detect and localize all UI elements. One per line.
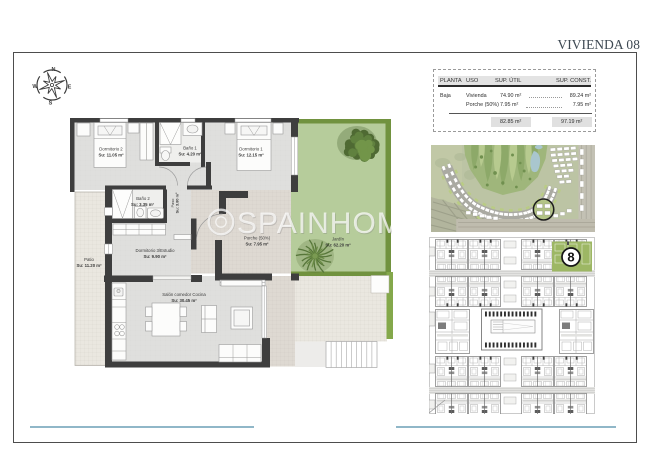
svg-text:Patio: Patio [84,257,94,262]
svg-text:Dormitorio 1: Dormitorio 1 [239,147,263,152]
svg-text:Su: 9.90 m²: Su: 9.90 m² [144,254,167,259]
svg-text:W: W [32,84,38,90]
svg-text:Dormitorio 3/Estudio: Dormitorio 3/Estudio [136,248,176,253]
svg-text:Su: 3.35 m²: Su: 3.35 m² [131,202,154,207]
svg-text:Baño 1: Baño 1 [183,146,197,151]
svg-text:Baño 2: Baño 2 [136,196,150,201]
svg-text:Salón comedor Cocina: Salón comedor Cocina [162,292,206,297]
svg-text:Su: 7.95 m²: Su: 7.95 m² [246,242,269,247]
svg-text:8: 8 [567,250,574,265]
svg-text:Dormitorio 2: Dormitorio 2 [99,147,123,152]
svg-text:Su: 30.45 m²: Su: 30.45 m² [171,298,197,303]
svg-text:Su: 12.15 m²: Su: 12.15 m² [238,153,264,158]
svg-text:E: E [68,85,72,91]
svg-text:S: S [49,101,53,107]
svg-text:Su: 62.20 m²: Su: 62.20 m² [325,243,351,248]
svg-text:Su: 3.80 m²: Su: 3.80 m² [175,192,180,213]
svg-text:Su: 11.05 m²: Su: 11.05 m² [98,153,124,158]
svg-text:N: N [52,67,56,73]
svg-text:Su: 4.20 m²: Su: 4.20 m² [179,152,202,157]
svg-text:SPAINHOME: SPAINHOME [237,207,400,240]
svg-text:Su: 11.20 m²: Su: 11.20 m² [76,263,102,268]
